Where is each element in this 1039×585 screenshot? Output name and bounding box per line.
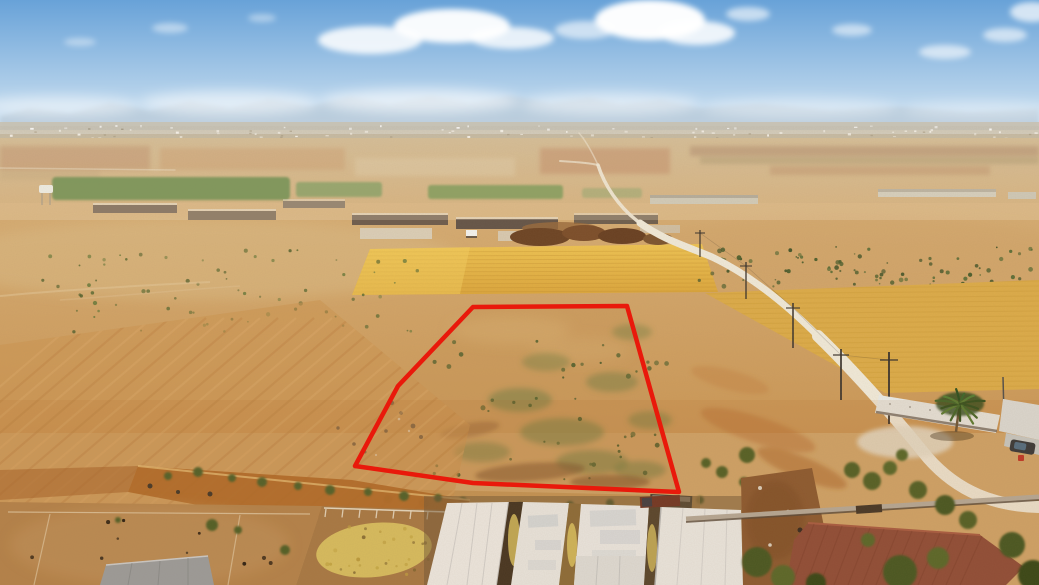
- aerial-photo-of-land-plot: [0, 0, 1039, 585]
- photo-grain: [0, 126, 1039, 585]
- landscape-scene: [0, 0, 1039, 585]
